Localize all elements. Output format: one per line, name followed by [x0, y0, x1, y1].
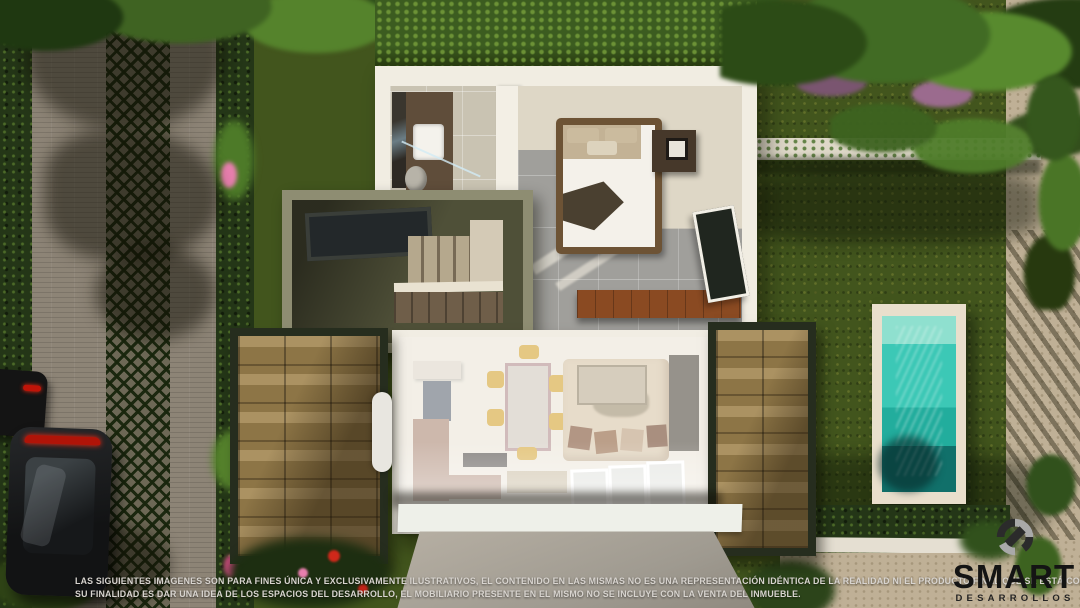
driveway-threshold — [398, 504, 743, 532]
parked-car-black — [5, 426, 113, 597]
nightstand-lamp — [666, 138, 688, 160]
toilet — [405, 166, 427, 192]
car-under-pergola — [372, 392, 392, 472]
tree-shadow — [45, 130, 220, 260]
disclaimer-line-2: SU FINALIDAD ES DAR UNA IDEA DE LOS ESPA… — [75, 589, 801, 599]
flower-cluster-pink — [221, 162, 237, 188]
aerial-render-scene: LAS SIGUIENTES IMAGENES SON PARA FINES Ú… — [0, 0, 1080, 608]
pool-shadow-patch — [878, 436, 938, 492]
car-taillight-bar — [24, 435, 100, 446]
taillight — [23, 385, 41, 392]
flower-cluster-red — [328, 550, 340, 562]
disclaimer-line-1: LAS SIGUIENTES IMAGENES SON PARA FINES Ú… — [75, 576, 1080, 586]
pool-water — [882, 316, 956, 492]
logo-subtitle-text: DESARROLLOS — [950, 593, 1080, 604]
pergola-shadow-overlay — [238, 336, 380, 556]
bed — [556, 118, 662, 254]
terrace-cabinet — [394, 292, 503, 323]
logo-brand-text: SMART — [948, 560, 1080, 593]
hedge-top-house — [375, 0, 757, 66]
throw-blanket — [563, 177, 641, 233]
carport-pergola-left — [230, 328, 388, 564]
bathroom-mirror — [392, 92, 406, 188]
bush — [214, 120, 254, 200]
nightstand — [652, 130, 696, 172]
tree-far-right — [1000, 70, 1080, 310]
smart-s-icon — [992, 514, 1038, 560]
stair-landing — [470, 220, 503, 290]
tree-shadow — [95, 245, 215, 340]
pillow-center — [587, 141, 617, 155]
